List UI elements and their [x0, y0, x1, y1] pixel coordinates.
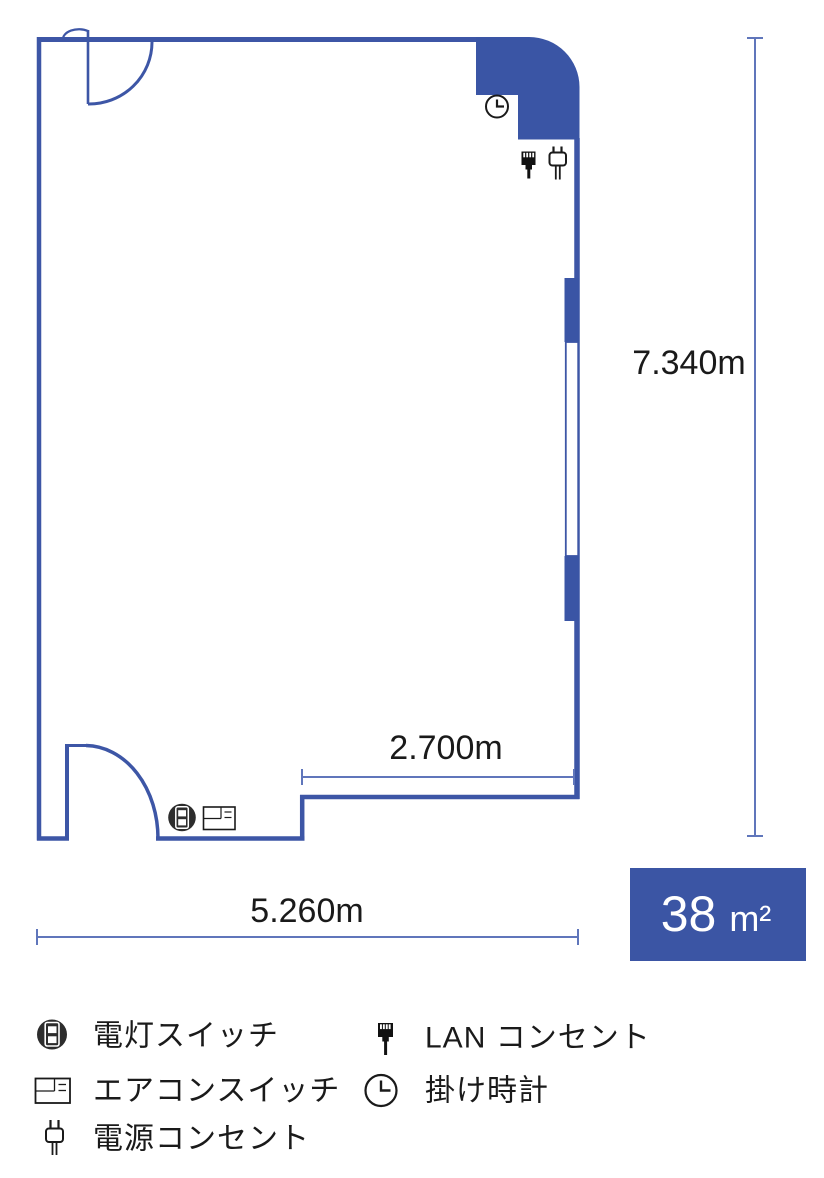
entrance-door-bottom: [65, 744, 158, 841]
door-top-swing-arc: [88, 42, 152, 104]
dim-width-label: 5.260m: [250, 892, 363, 930]
window-pillar-bottom: [565, 556, 580, 621]
legend: 電灯スイッチ エアコンスイッチ 電源コンセント: [36, 1020, 651, 1156]
wall-clock-icon: [366, 1075, 397, 1106]
light-switch-icon: [168, 804, 196, 832]
dimension-width: 5.260m: [37, 892, 578, 945]
floor-plan-canvas: 7.340m 2.700m 5.260m 38m² 電灯スイッチ: [0, 0, 824, 1178]
legend-label-power-outlet: 電源コンセント: [93, 1123, 310, 1156]
legend-label-aircon-switch: エアコンスイッチ: [93, 1075, 340, 1108]
dimension-partial-width: 2.700m: [302, 729, 574, 785]
aircon-switch-icon: [36, 1079, 71, 1104]
lan-outlet-icon: [378, 1023, 393, 1055]
legend-label-light-switch: 電灯スイッチ: [93, 1020, 279, 1053]
dim-height-label: 7.340m: [632, 344, 745, 382]
power-outlet-icon: [550, 147, 567, 180]
power-outlet-icon: [46, 1120, 63, 1155]
legend-label-wall-clock: 掛け時計: [425, 1075, 549, 1108]
area-badge-box: [630, 868, 806, 961]
corner-pillar-fill: [476, 37, 580, 140]
lan-outlet-icon: [522, 152, 536, 179]
window-opening: [566, 342, 578, 556]
light-switch-icon: [37, 1020, 67, 1050]
dimension-height: 7.340m: [632, 38, 763, 836]
right-wall-window: [565, 278, 580, 621]
legend-label-lan-outlet: LAN コンセント: [425, 1022, 651, 1055]
door-bottom-swing-arc: [86, 746, 158, 839]
floor-plan-svg: 7.340m 2.700m 5.260m 38m² 電灯スイッチ: [0, 0, 824, 1178]
window-pillar-top: [565, 278, 580, 342]
wall-clock-icon: [486, 96, 508, 118]
area-badge: 38m²: [630, 868, 806, 961]
dim-partial-width-label: 2.700m: [389, 729, 502, 767]
aircon-switch-icon: [204, 807, 236, 830]
room-outline: [37, 37, 580, 841]
